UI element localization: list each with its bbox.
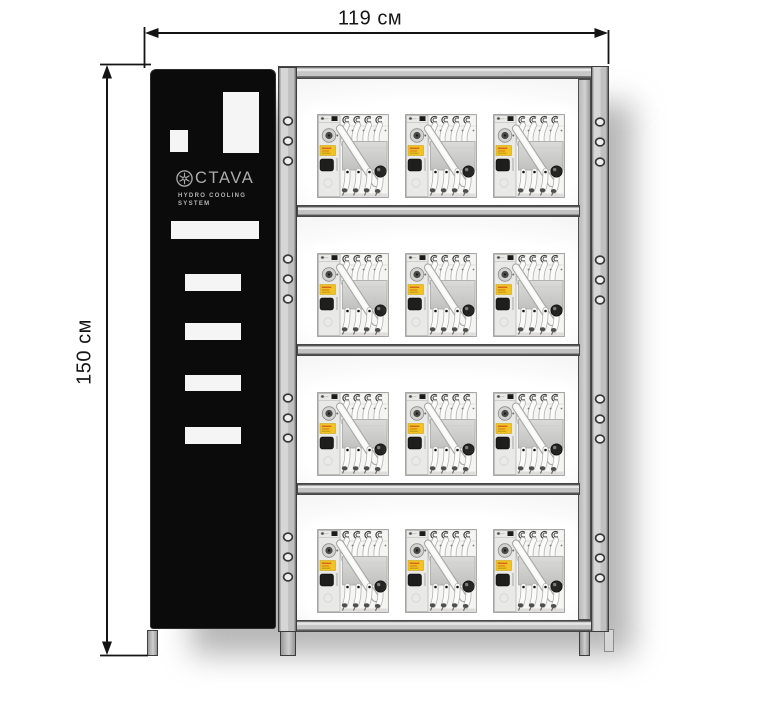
panel-slot bbox=[185, 274, 241, 291]
cooling-unit bbox=[317, 253, 389, 337]
cooling-unit bbox=[317, 392, 389, 476]
cooling-unit bbox=[493, 529, 565, 613]
cooling-unit bbox=[493, 253, 565, 337]
rack-shelf bbox=[297, 205, 580, 217]
cooling-unit bbox=[405, 529, 477, 613]
rack-leg-rear bbox=[604, 629, 614, 652]
diagram-canvas: CTAVA HYDRO COOLING SYSTEM 119 см 150 bbox=[0, 0, 757, 723]
rack-post-right bbox=[591, 66, 609, 632]
rack-shelf bbox=[297, 483, 580, 495]
shelf-bay-4 bbox=[297, 495, 578, 620]
rack-shelf bbox=[297, 344, 580, 356]
panel-vent-large bbox=[223, 92, 259, 153]
panel-slot bbox=[185, 375, 241, 391]
cooling-unit bbox=[405, 392, 477, 476]
cooling-unit bbox=[405, 114, 477, 198]
rack-leg bbox=[147, 630, 158, 656]
rack-top-rail bbox=[278, 66, 609, 79]
height-dimension-label: 150 см bbox=[74, 319, 97, 385]
rack-leg bbox=[280, 631, 296, 656]
cooling-unit bbox=[493, 392, 565, 476]
cooling-unit bbox=[317, 529, 389, 613]
shelf-bay-1 bbox=[297, 79, 578, 205]
brand-panel: CTAVA HYDRO COOLING SYSTEM bbox=[150, 69, 276, 629]
rack-post-left bbox=[278, 67, 297, 632]
shelf-bay-3 bbox=[297, 356, 578, 483]
cooling-unit bbox=[405, 253, 477, 337]
rack-leg bbox=[579, 631, 590, 656]
brand-subtitle-line2: SYSTEM bbox=[178, 200, 246, 208]
mounting-holes bbox=[282, 68, 294, 630]
shelf-bay-2 bbox=[297, 217, 578, 344]
panel-vent-small bbox=[170, 130, 188, 152]
panel-slot bbox=[185, 323, 241, 340]
rack-bottom-rail bbox=[278, 620, 609, 632]
panel-slot bbox=[185, 427, 241, 444]
width-dimension-label: 119 см bbox=[338, 8, 402, 31]
brand-subtitle-line1: HYDRO COOLING bbox=[178, 192, 246, 200]
cooling-unit bbox=[493, 114, 565, 198]
mounting-holes bbox=[594, 67, 606, 629]
brand-logo: CTAVA bbox=[176, 169, 254, 188]
brand-logo-text: CTAVA bbox=[195, 169, 254, 188]
snowflake-logo-icon bbox=[176, 170, 193, 187]
panel-slot bbox=[171, 221, 259, 239]
brand-subtitle: HYDRO COOLING SYSTEM bbox=[178, 192, 246, 208]
cooling-unit bbox=[317, 114, 389, 198]
